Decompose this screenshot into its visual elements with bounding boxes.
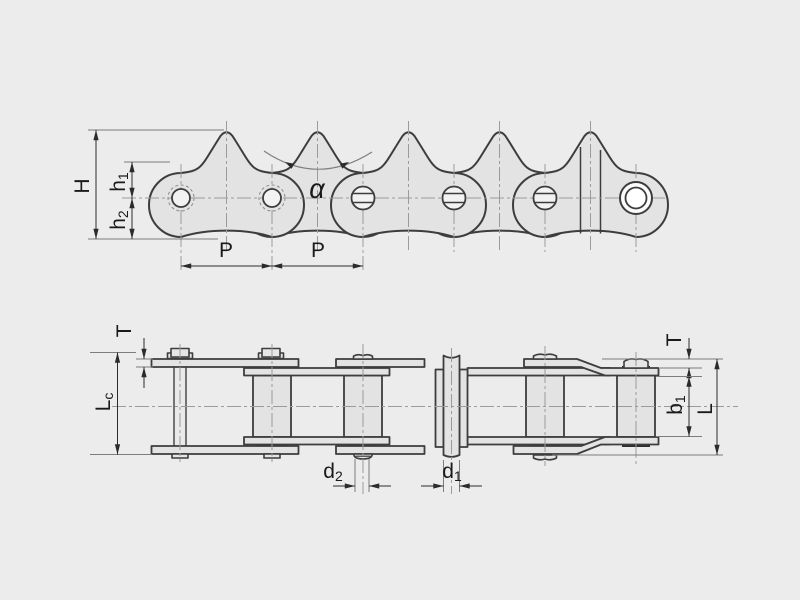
technical-drawing: H h1 h2 P P α: [0, 0, 800, 600]
plate-end-face-left: [436, 370, 444, 448]
label-L: L: [694, 403, 717, 415]
roller-hole-6: [620, 182, 652, 214]
bush-hole-3: [352, 187, 375, 210]
inner-plate-top-left: [244, 368, 390, 376]
label-P2: P: [311, 239, 325, 262]
outer-plate-bottom-2: [336, 446, 425, 454]
label-T-right: T: [663, 333, 686, 346]
label-T-left: T: [113, 324, 136, 337]
label-alpha: α: [309, 174, 326, 204]
label-P1: P: [219, 239, 233, 262]
outer-plate-top-1: [152, 359, 299, 367]
plate-end-face-right: [460, 370, 468, 448]
drawing-background: [0, 0, 800, 600]
outer-plate-bottom-1: [152, 446, 299, 454]
label-H: H: [71, 178, 94, 193]
bush-hole-4: [443, 187, 466, 210]
inner-plate-bottom-left: [244, 437, 390, 445]
outer-plate-top-2: [336, 359, 425, 367]
bush-hole-5: [534, 187, 557, 210]
